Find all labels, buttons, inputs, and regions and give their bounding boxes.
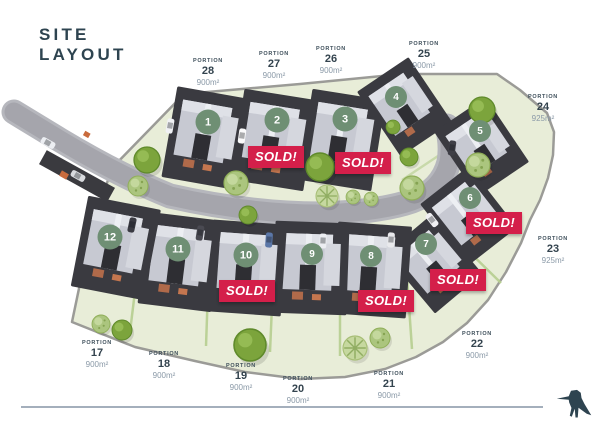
sold-banner-lot8: SOLD! <box>358 290 414 312</box>
lot-number-5: 5 <box>469 120 491 142</box>
lot-number-6: 6 <box>459 187 481 209</box>
footer-divider <box>21 406 543 408</box>
portion-label-24: PORTION 24 925m² <box>528 94 558 123</box>
sold-banner-lot2: SOLD! <box>248 146 304 168</box>
brand-bird-logo <box>556 386 592 422</box>
portion-label-21: PORTION 21 900m² <box>374 371 404 400</box>
lot-number-7: 7 <box>415 233 437 255</box>
portion-label-25: PORTION 25 900m² <box>409 41 439 70</box>
lot-number-4: 4 <box>385 86 407 108</box>
portion-label-28: PORTION 28 900m² <box>193 58 223 87</box>
lot-number-9: 9 <box>301 243 323 265</box>
sold-banner-lot6: SOLD! <box>466 212 522 234</box>
lot-number-12: 12 <box>98 225 123 250</box>
sold-banner-lot7: SOLD! <box>430 269 486 291</box>
page-title: SITE LAYOUT <box>39 25 127 65</box>
portion-label-23: PORTION 23 925m² <box>538 236 568 265</box>
lot-number-1: 1 <box>196 110 221 135</box>
lot-number-3: 3 <box>333 107 358 132</box>
portion-label-26: PORTION 26 900m² <box>316 46 346 75</box>
sold-banner-lot3: SOLD! <box>335 152 391 174</box>
portion-label-18: PORTION 18 900m² <box>149 351 179 380</box>
portion-label-20: PORTION 20 900m² <box>283 376 313 405</box>
site-plan: SITE LAYOUT PORTION 17 900m² PORTION 18 … <box>0 0 600 424</box>
portion-label-17: PORTION 17 900m² <box>82 340 112 369</box>
sold-banner-lot10: SOLD! <box>219 280 275 302</box>
portion-label-19: PORTION 19 900m² <box>226 363 256 392</box>
portion-label-27: PORTION 27 900m² <box>259 51 289 80</box>
page-title-line2: LAYOUT <box>39 45 127 65</box>
lot-number-11: 11 <box>166 237 191 262</box>
lot-number-2: 2 <box>265 108 290 133</box>
lot-number-10: 10 <box>234 243 259 268</box>
portion-label-22: PORTION 22 900m² <box>462 331 492 360</box>
page-title-line1: SITE <box>39 25 127 45</box>
lot-number-8: 8 <box>360 245 382 267</box>
